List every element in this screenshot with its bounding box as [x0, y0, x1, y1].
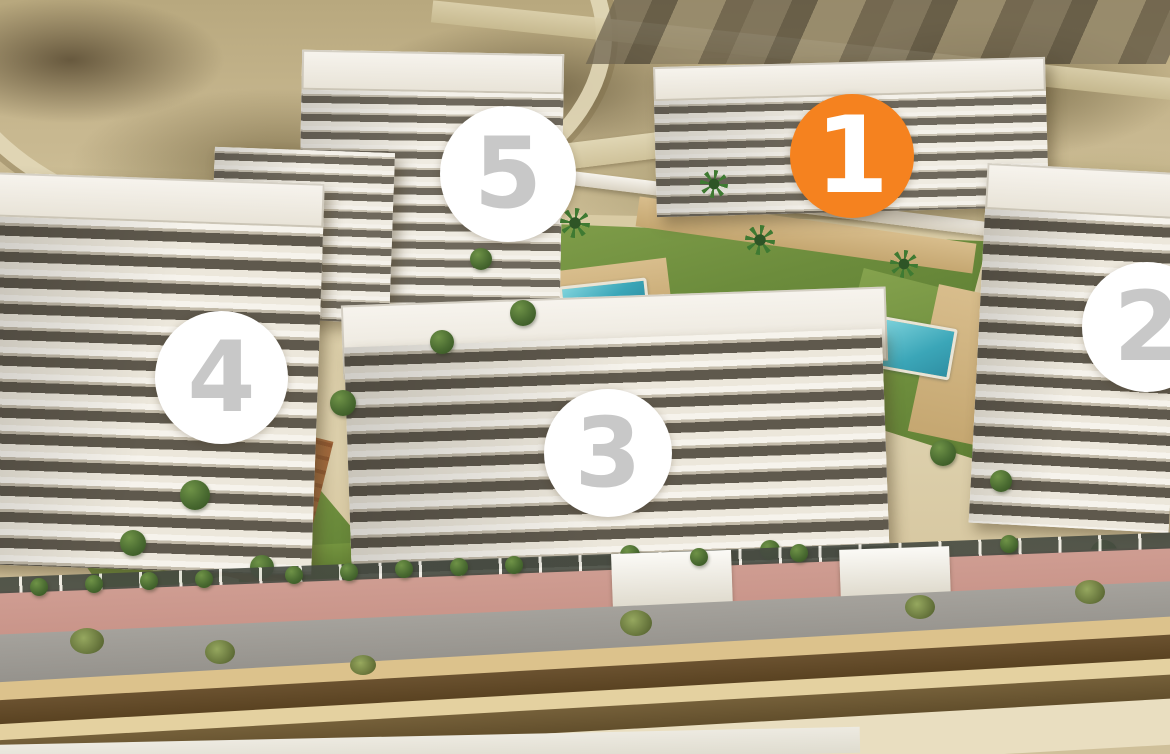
marker-building-1[interactable]: 1 [790, 94, 914, 218]
tree [990, 470, 1012, 492]
palm-tree [560, 208, 590, 238]
marker-5-number: 5 [474, 125, 542, 223]
street-tree [1000, 535, 1018, 553]
marker-building-3[interactable]: 3 [544, 389, 672, 517]
street-tree [790, 544, 808, 562]
street-tree [395, 560, 413, 578]
street-tree [195, 570, 213, 588]
marker-3-number: 3 [575, 405, 642, 501]
palm-tree [890, 250, 918, 278]
tree [470, 248, 492, 270]
street-tree [140, 572, 158, 590]
marker-2-number: 2 [1114, 279, 1170, 375]
street-tree [340, 563, 358, 581]
palm-tree [745, 225, 775, 255]
tree [510, 300, 536, 326]
tree [120, 530, 146, 556]
street-tree [690, 548, 708, 566]
marker-building-4[interactable]: 4 [155, 311, 288, 444]
street-tree [285, 566, 303, 584]
street-tree [30, 578, 48, 596]
tree [430, 330, 454, 354]
tree [180, 480, 210, 510]
roadside-shrub [1075, 580, 1105, 604]
roadside-shrub [350, 655, 376, 675]
far-background-buildings [586, 0, 1170, 64]
tree [330, 390, 356, 416]
street-tree [505, 556, 523, 574]
aerial-development-render: 1 5 4 3 2 [0, 0, 1170, 754]
roadside-shrub [70, 628, 104, 654]
street-tree [85, 575, 103, 593]
palm-tree [700, 170, 728, 198]
street-tree [450, 558, 468, 576]
marker-building-5[interactable]: 5 [440, 106, 576, 242]
building-5-roof [302, 50, 565, 95]
roadside-shrub [205, 640, 235, 664]
marker-1-number: 1 [815, 103, 889, 209]
roadside-shrub [905, 595, 935, 619]
roadside-shrub [620, 610, 652, 636]
marker-4-number: 4 [187, 329, 255, 427]
tree [930, 440, 956, 466]
